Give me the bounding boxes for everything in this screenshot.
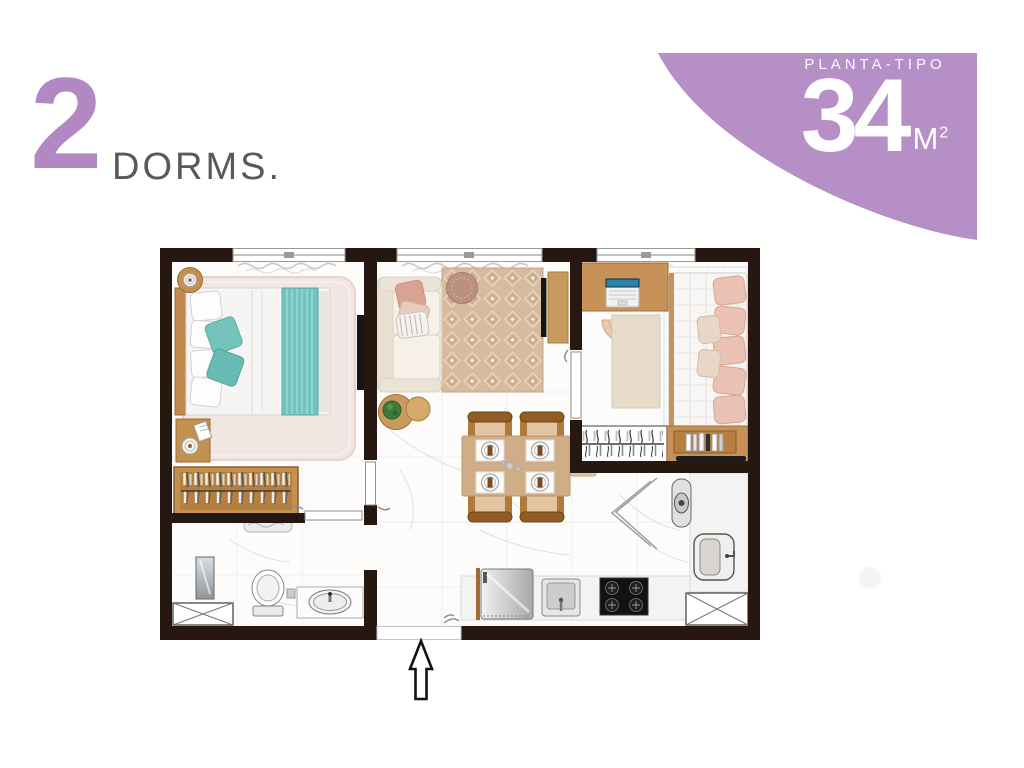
floor-plan-svg [150, 238, 780, 713]
wall-bedroom1 [364, 262, 377, 460]
kitchen-duct-shaft [686, 593, 748, 625]
pink-pillows [712, 275, 746, 424]
bedroom1-door [366, 462, 376, 505]
badge-eyebrow: PLANTA-TIPO [760, 56, 990, 73]
shelf-tv-bar [676, 456, 746, 461]
beige-pillow [697, 349, 722, 378]
sofa [377, 277, 442, 392]
bathroom-door [305, 511, 362, 520]
soap-dish [287, 589, 295, 598]
laptop [606, 279, 639, 307]
headboard [175, 288, 186, 415]
cooktop [600, 578, 648, 615]
dorm-count: 2 [30, 58, 99, 188]
bookshelf [667, 426, 748, 462]
laundry-tank [694, 534, 734, 580]
tv-console [548, 272, 568, 343]
badge-area-unit: M2 [912, 121, 949, 157]
wardrobe-rack-2 [577, 426, 667, 462]
windows [233, 249, 695, 262]
entrance-opening [377, 627, 461, 640]
toilet [252, 570, 284, 616]
shower-glass [196, 557, 214, 599]
desk [576, 263, 668, 311]
floor-plan [150, 238, 780, 713]
round-side-table [178, 268, 203, 293]
striped-pillow [395, 311, 429, 339]
bedroom1-tv [357, 315, 364, 390]
dorm-label: DORMS. [112, 146, 282, 189]
page: 2 DORMS. PLANTA-TIPO 34 M2 [0, 0, 1024, 768]
plant [383, 401, 401, 419]
wall-bedroom2-left [570, 262, 582, 350]
nightstand [176, 419, 212, 462]
teal-runner [282, 288, 318, 415]
wall-right [748, 248, 760, 640]
beige-pillow [697, 315, 722, 344]
window-bedroom2 [597, 249, 695, 262]
watermark-dot [859, 567, 881, 589]
window-living [397, 249, 542, 262]
table-decor [507, 463, 514, 470]
vanity-sink [287, 587, 363, 618]
duvet-edge [318, 291, 330, 412]
bedroom2-rug [612, 315, 660, 408]
wall-bathroom [364, 570, 377, 626]
water-heater [672, 479, 691, 527]
wall-bathroom-top [172, 513, 305, 523]
wall-left [160, 248, 172, 640]
cabinet-panel [476, 568, 480, 620]
single-bed [669, 273, 747, 429]
wardrobe-rack-1 [174, 467, 298, 514]
bedroom2-door [571, 352, 581, 418]
fridge [481, 569, 533, 619]
pouf [447, 273, 478, 304]
bathroom-duct-shaft [173, 603, 233, 625]
wall-bedroom2-bottom [570, 461, 748, 473]
window-bedroom1 [233, 249, 345, 262]
area-badge: PLANTA-TIPO 34 M2 [645, 38, 990, 253]
badge-area-value: 34 [801, 69, 907, 165]
living-tv [541, 278, 547, 337]
kitchen-sink [542, 579, 580, 616]
entrance-arrow [410, 641, 432, 699]
